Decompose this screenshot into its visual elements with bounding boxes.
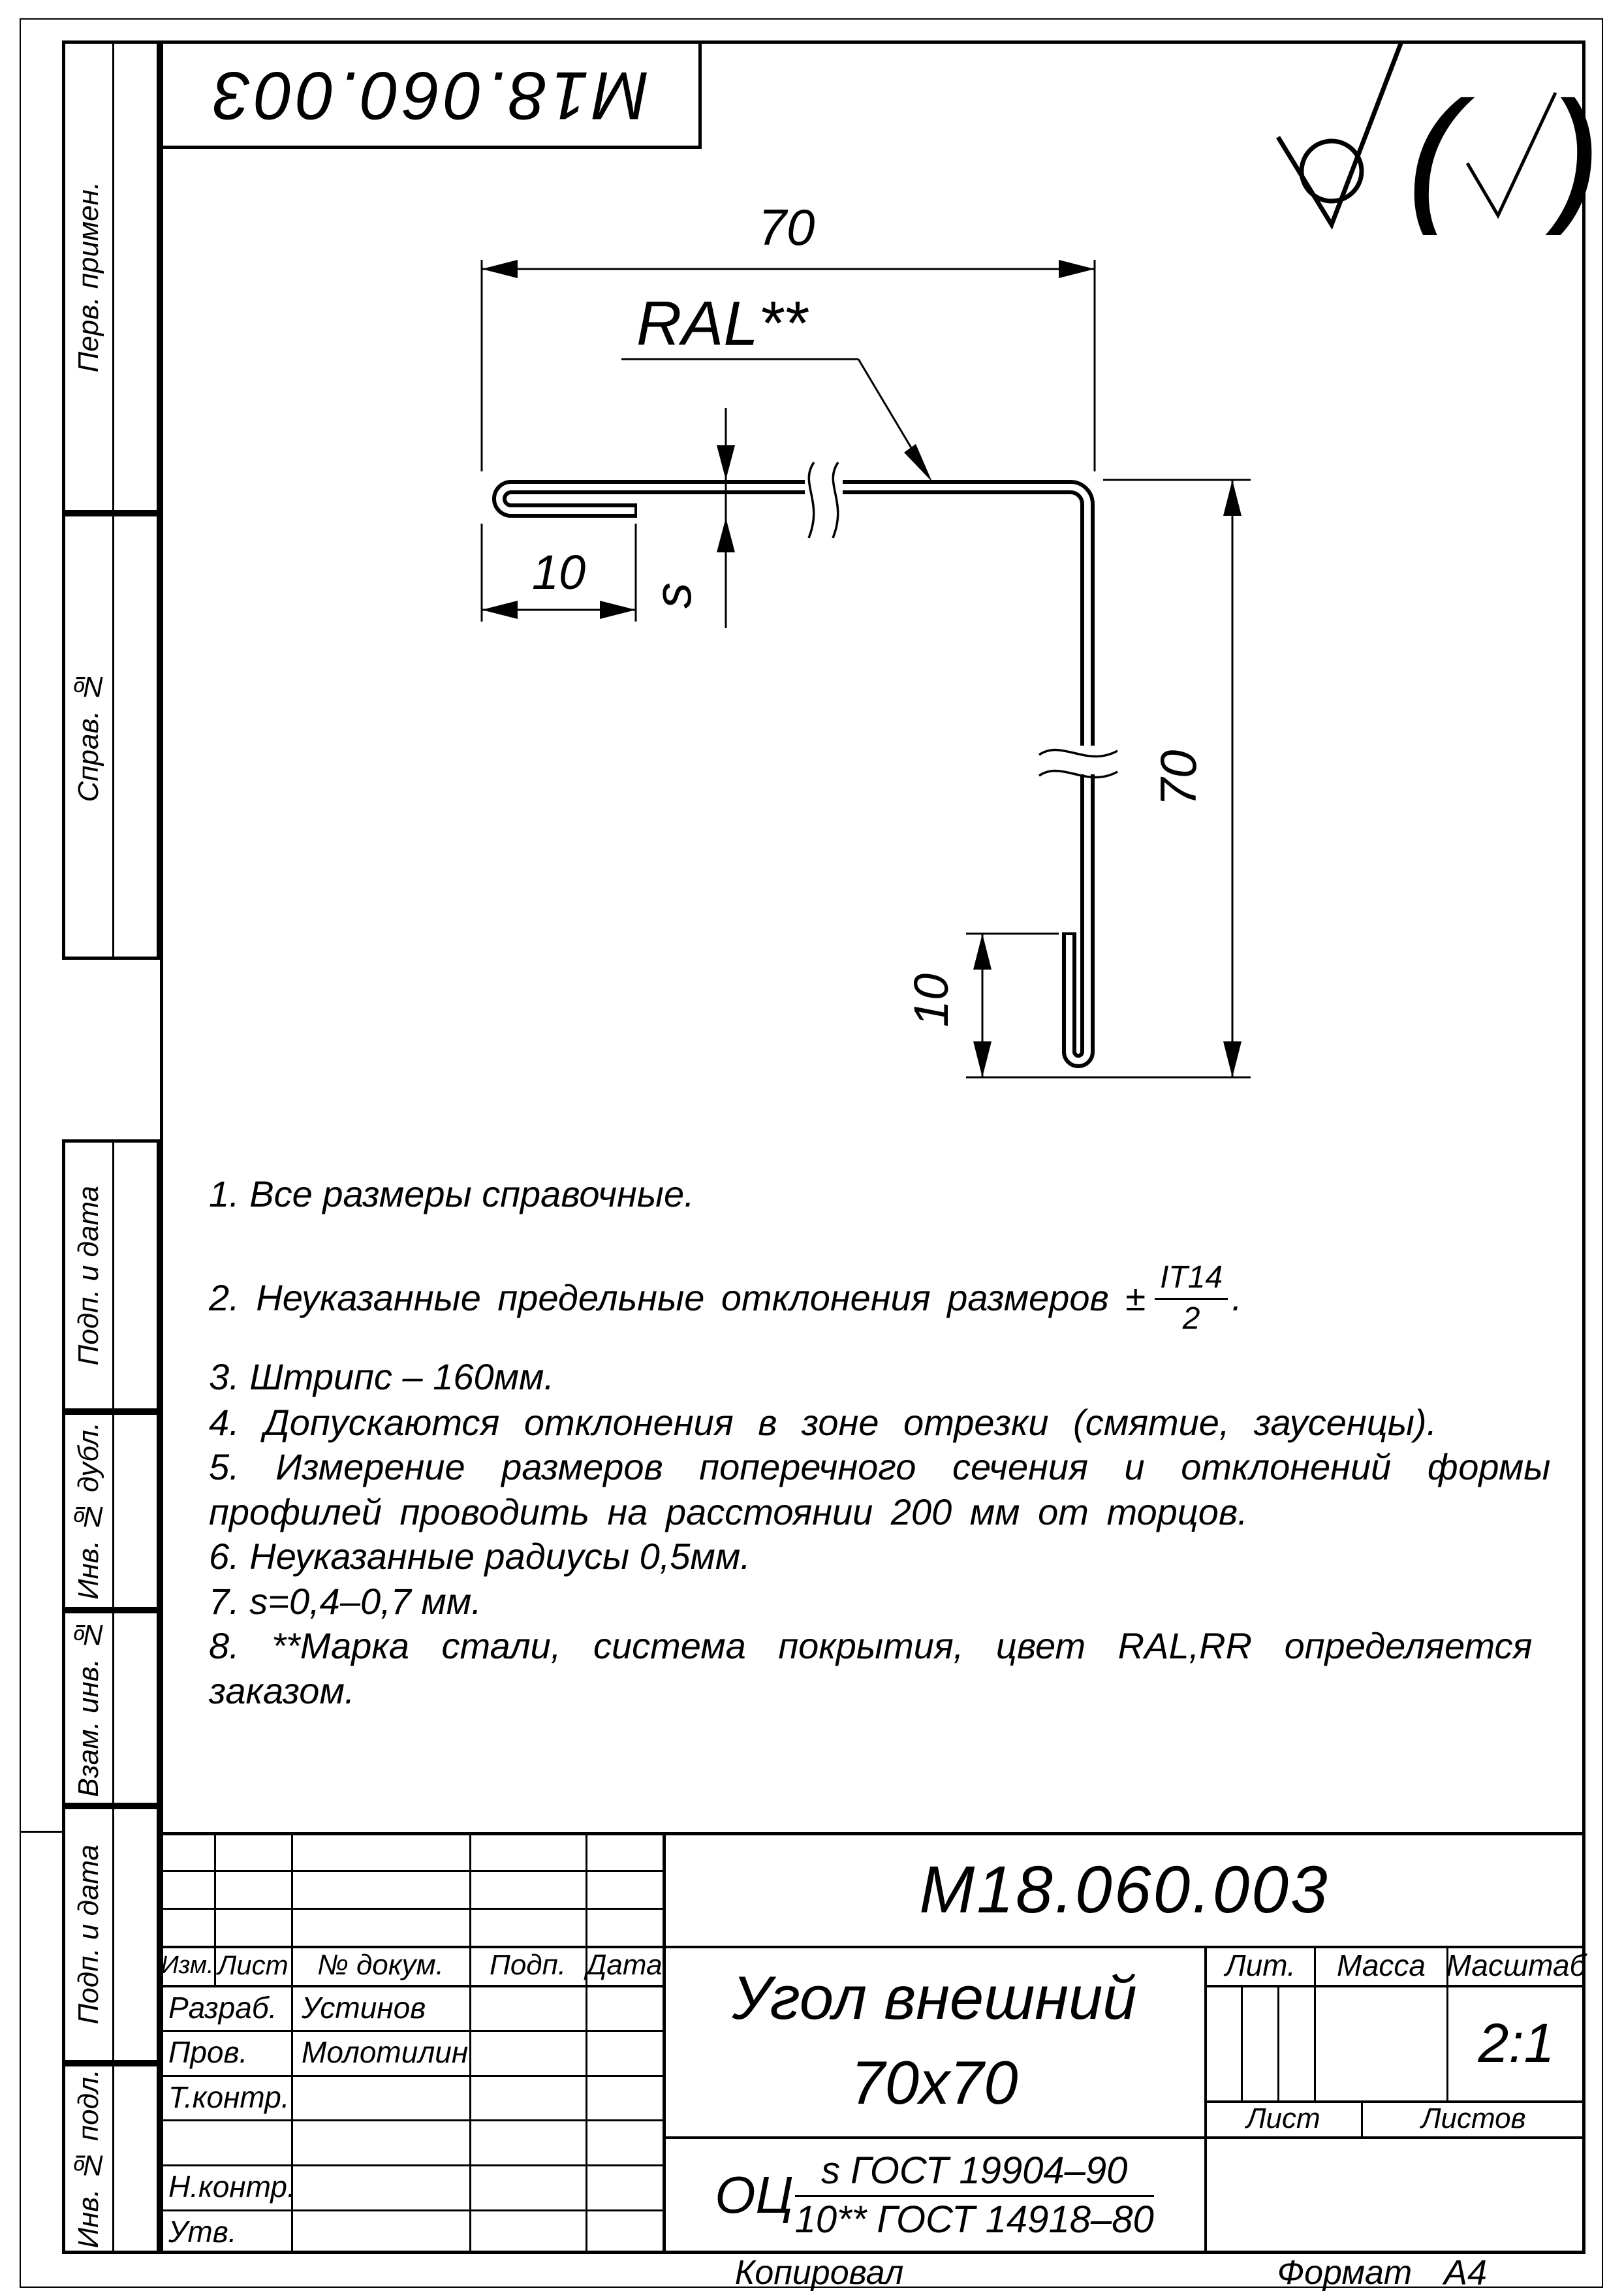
margin-label: Взам. инв. №: [72, 1619, 105, 1797]
margin-box-perv-primen: Перв. примен.: [62, 40, 160, 513]
fraction-numerator: IT14: [1155, 1259, 1228, 1300]
note-1: 1. Все размеры справочные.: [209, 1172, 695, 1216]
profile-drawing: 70 RAL** s 10: [366, 170, 1332, 1149]
grid-line: [160, 2119, 663, 2121]
fraction-denominator: 2: [1155, 1300, 1228, 1338]
dim-thickness-label: s: [644, 582, 702, 609]
tb-role-prov: Пров.: [168, 2032, 290, 2072]
grid-line: [469, 1832, 471, 2254]
margin-label-cell: Взам. инв. №: [65, 1613, 114, 1803]
fold-mark: [21, 1831, 62, 1833]
coating-leader: [621, 359, 932, 482]
grid-line: [1241, 1986, 1243, 2101]
margin-label-cell: Справ. №: [65, 516, 114, 957]
grid-line: [160, 1908, 663, 1910]
margin-label-cell: Инв. № дубл.: [65, 1415, 114, 1607]
note-4: 4. Допускаются отклонения в зоне отрезки…: [209, 1401, 1437, 1445]
note-6: 6. Неуказанные радиусы 0,5мм.: [209, 1534, 751, 1579]
tb-material-cell: ОЦs ГОСТ 19904–9010** ГОСТ 14918–80: [666, 2139, 1203, 2251]
tb-name-razrab: Устинов: [302, 1987, 468, 2028]
tolerance-fraction: IT142: [1155, 1259, 1228, 1337]
top-stamp: М18.060.003: [157, 40, 702, 149]
tb-part-name-line1: Угол внешний: [666, 1959, 1203, 2037]
margin-box-vzam-inv: Взам. инв. №: [62, 1610, 160, 1806]
note-2: 2. Неуказанные предельные отклонения раз…: [209, 1259, 1242, 1337]
note-8-line2: заказом.: [209, 1669, 354, 1713]
tb-sheet-label: Лист: [1207, 2102, 1360, 2136]
tb-name-prov: Молотилин: [302, 2032, 468, 2072]
tb-doc-number: М18.060.003: [666, 1833, 1583, 1946]
dimension-right-70: [966, 480, 1251, 1077]
tb-col-data: Дата: [587, 1947, 662, 1984]
tb-mass-label: Масса: [1316, 1947, 1446, 1984]
tb-material-denominator: 10** ГОСТ 14918–80: [795, 2197, 1154, 2243]
margin-box-sprav-no: Справ. №: [62, 513, 160, 960]
note-5-line2: профилей проводить на расстоянии 200 мм …: [209, 1490, 1248, 1534]
top-stamp-doc-number: М18.060.003: [210, 56, 649, 134]
check-icon: [1467, 93, 1555, 215]
tb-role-nkontr: Н.контр.: [168, 2166, 290, 2207]
dimension-hem-10-bottom: [966, 934, 1059, 1077]
dim-top-70-label: 70: [758, 198, 815, 256]
margin-label-cell: Подп. и дата: [65, 1809, 114, 2060]
tb-col-podp: Подп.: [471, 1947, 585, 1984]
tb-col-doc: № докум.: [292, 1947, 469, 1984]
tb-scale-label: Масштаб: [1448, 1947, 1584, 1984]
break-mark-vertical: [1039, 746, 1117, 778]
tb-col-izm: Изм.: [161, 1947, 213, 1984]
note-3: 3. Штрипс – 160мм.: [209, 1355, 554, 1399]
tb-role-tkontr: Т.контр.: [168, 2077, 290, 2117]
margin-box-podp-data-2: Подп. и дата: [62, 1806, 160, 2063]
note-2-text: 2. Неуказанные предельные отклонения раз…: [209, 1276, 1146, 1320]
grid-line: [1277, 1986, 1279, 2101]
margin-label-cell: Подп. и дата: [65, 1143, 114, 1408]
margin-label-cell: Инв. № подл.: [65, 2066, 114, 2251]
profile-outline: [499, 487, 1087, 1061]
tb-material-fraction: s ГОСТ 19904–9010** ГОСТ 14918–80: [795, 2148, 1154, 2242]
tb-material-numerator: s ГОСТ 19904–90: [795, 2148, 1154, 2197]
grid-line: [586, 1832, 587, 2254]
tb-col-list: Лист: [215, 1947, 290, 1984]
dim-hem-left-label: 10: [532, 545, 586, 599]
margin-label: Подп. и дата: [72, 1186, 105, 1365]
dimension-thickness-s: [717, 408, 735, 628]
tb-scale-value: 2:1: [1448, 1987, 1584, 2098]
tb-sheets-label: Листов: [1363, 2102, 1584, 2136]
note-7: 7. s=0,4–0,7 мм.: [209, 1579, 482, 1624]
margin-box-podp-data-1: Подп. и дата: [62, 1139, 160, 1412]
tb-material-prefix: ОЦ: [715, 2165, 793, 2225]
tb-role-razrab: Разраб.: [168, 1987, 290, 2028]
dim-hem-bottom-label: 10: [904, 973, 958, 1027]
coating-label: RAL**: [636, 289, 809, 358]
margin-label: Подп. и дата: [72, 1844, 105, 2024]
tb-part-name-line2: 70х70: [666, 2044, 1203, 2122]
margin-box-inv-dubl: Инв. № дубл.: [62, 1412, 160, 1610]
paren-open: (: [1407, 68, 1475, 235]
tb-lit-label: Лит.: [1207, 1947, 1314, 1984]
break-mark-horizontal: [805, 462, 843, 538]
margin-box-inv-podl: Инв. № подл.: [62, 2063, 160, 2254]
margin-label: Перв. примен.: [72, 182, 105, 372]
grid-line: [160, 1870, 663, 1872]
note-2-period: .: [1232, 1276, 1242, 1320]
margin-label: Инв. № дубл.: [72, 1422, 105, 1600]
grid-line: [1204, 1946, 1207, 2254]
footer-copied-label: Копировал: [711, 2256, 927, 2289]
note-8-line1: 8. **Марка стали, система покрытия, цвет…: [209, 1624, 1532, 1668]
footer-format-label: Формат: [1283, 2256, 1407, 2289]
paren-close: ): [1531, 68, 1601, 235]
margin-label: Инв. № подл.: [72, 2069, 105, 2248]
margin-label: Справ. №: [72, 671, 105, 802]
footer-format-value: А4: [1429, 2256, 1501, 2289]
tb-role-utv: Утв.: [168, 2211, 290, 2252]
margin-label-cell: Перв. примен.: [65, 44, 114, 510]
note-5-line1: 5. Измерение размеров поперечного сечени…: [209, 1445, 1551, 1489]
dim-right-70-label: 70: [1149, 750, 1207, 807]
drawing-sheet: М18.060.003 Перв. примен. Справ. № Подп.…: [0, 0, 1624, 2295]
